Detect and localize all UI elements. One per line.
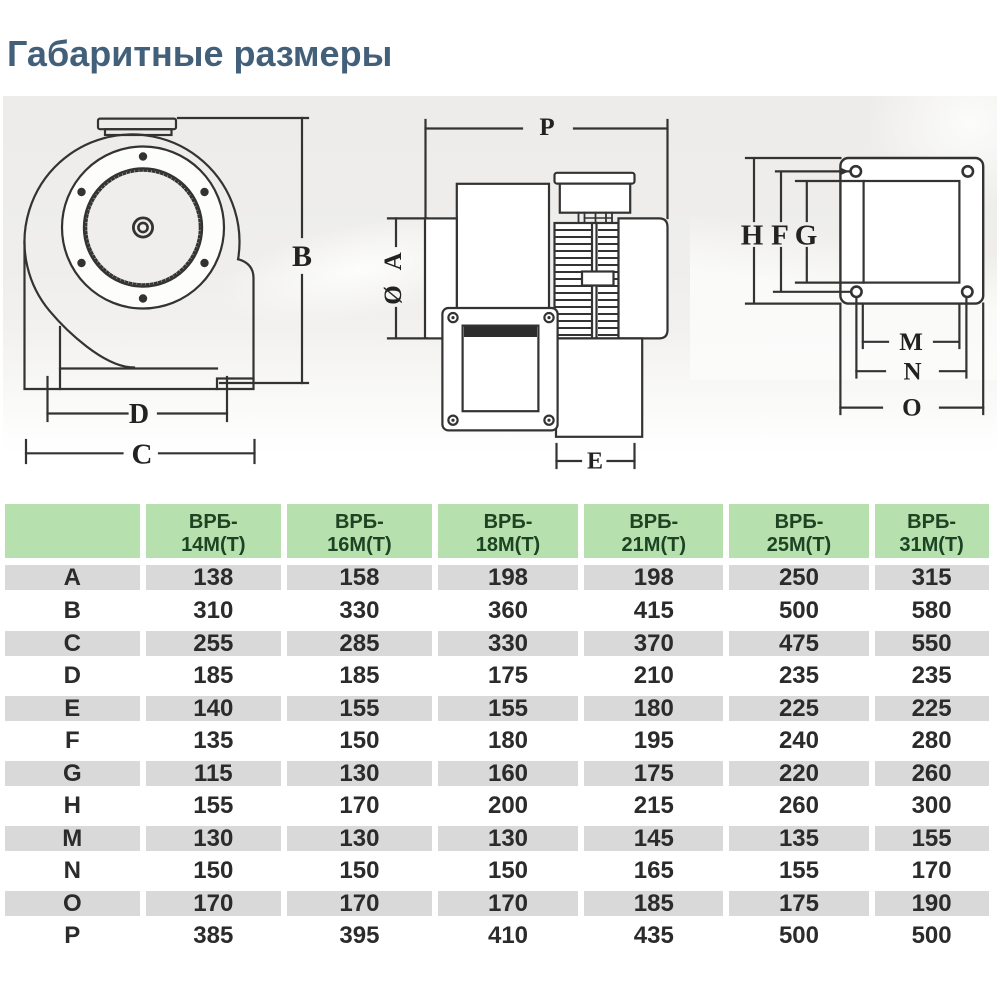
svg-text:E: E [587, 449, 603, 475]
svg-text:F: F [771, 220, 789, 252]
svg-text:Ø A: Ø A [380, 247, 407, 304]
svg-text:G: G [795, 220, 818, 252]
svg-text:M: M [899, 329, 923, 356]
svg-text:H: H [741, 220, 764, 252]
svg-text:O: O [902, 395, 921, 422]
svg-text:C: C [132, 439, 153, 471]
svg-text:D: D [129, 399, 149, 430]
svg-text:N: N [903, 359, 921, 386]
svg-text:B: B [292, 240, 312, 273]
svg-text:P: P [539, 114, 554, 141]
